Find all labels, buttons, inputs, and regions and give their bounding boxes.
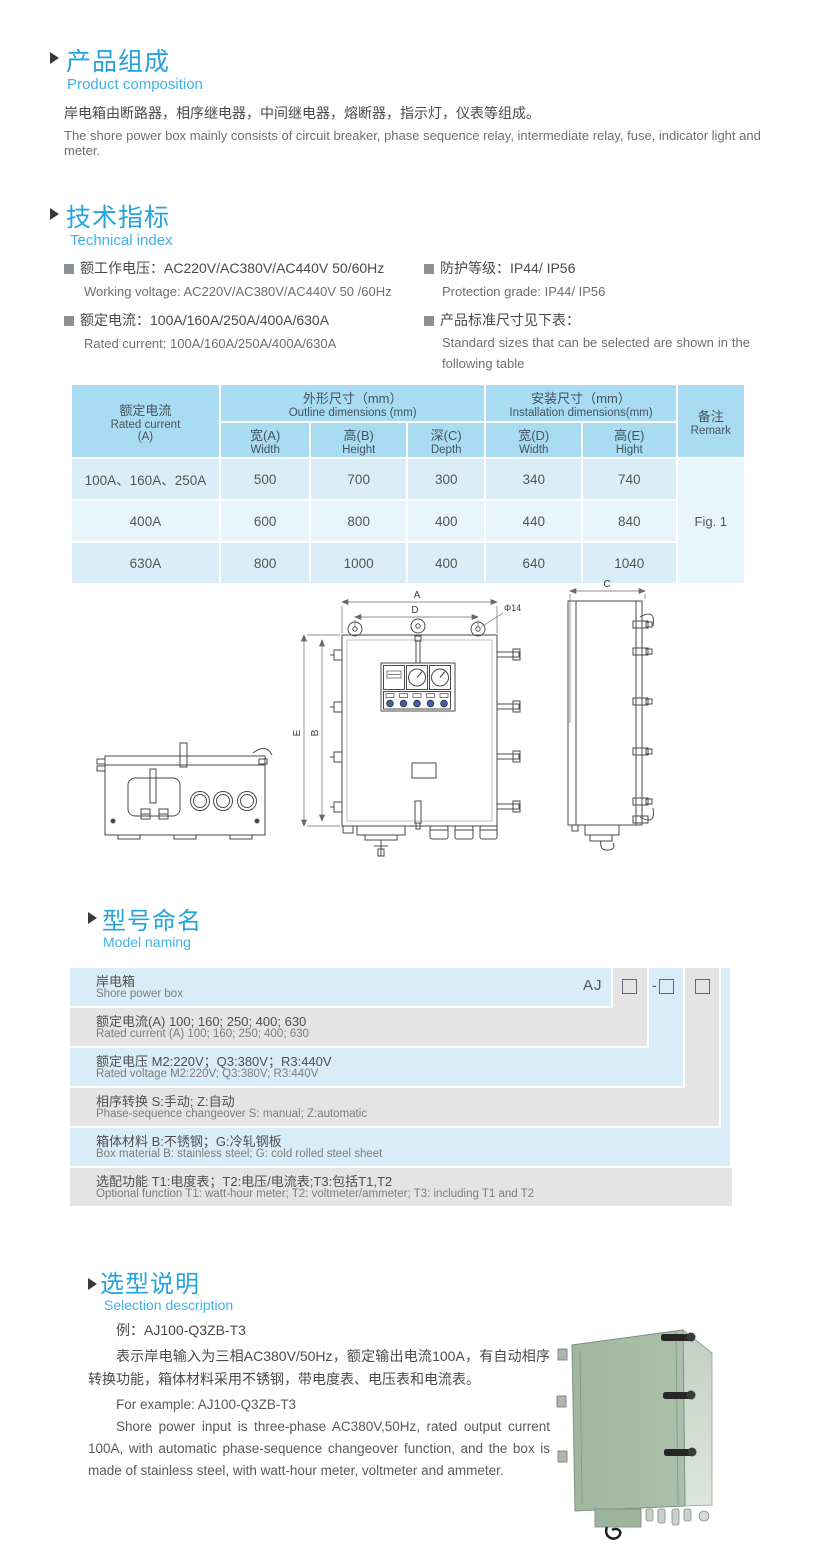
square-bullet-icon (424, 264, 434, 274)
dim-label-d: D (411, 605, 418, 616)
cell-current: 100A、160A、250A (72, 459, 219, 499)
table-row: 400A 600 800 400 440 840 (72, 501, 744, 541)
header-height-b: 高(B)Height (311, 423, 406, 457)
selection-text-block: 例：AJ100-Q3ZB-T3 表示岸电输入为三相AC380V/50Hz，额定输… (88, 1320, 550, 1482)
spec-rated-current-en: Rated current: 100A/160A/250A/400A/630A (84, 336, 336, 351)
section-title-selection: 选型说明 (100, 1264, 200, 1299)
cabinet-body (572, 1330, 712, 1511)
dimension-lines-side (570, 589, 645, 724)
front-view-drawing: A D Φ14 E B (292, 590, 521, 856)
remark-value: Fig. 1 (678, 459, 744, 583)
square-bullet-icon (64, 264, 74, 274)
square-bullet-icon (64, 316, 74, 326)
square-bullet-icon (424, 316, 434, 326)
spec-working-voltage-zh: 额工作电压：AC220V/AC380V/AC440V 50/60Hz (64, 258, 384, 278)
selection-example-zh: 例：AJ100-Q3ZB-T3 (88, 1320, 550, 1340)
section-title-model-naming: 型号命名 (102, 901, 202, 936)
cabinet-hinges (557, 1349, 567, 1462)
composition-text-zh: 岸电箱由断路器，相序继电器，中间继电器，熔断器，指示灯，仪表等组成。 (64, 103, 784, 123)
spec-standard-size-zh: 产品标准尺寸见下表： (424, 310, 580, 330)
model-naming-diagram: 岸电箱Shore power box 额定电流(A) 100; 160; 250… (0, 968, 830, 1213)
dim-label-e: E (292, 729, 303, 736)
model-row-optional-function: 选配功能 T1:电度表；T2:电压/电流表;T3:包括T1,T2Optional… (70, 1168, 732, 1206)
header-rated-current: 额定电流 Rated current (A) (72, 385, 219, 457)
spec-protection-en: Protection grade: IP44/ IP56 (442, 284, 605, 299)
product-photo (545, 1293, 800, 1568)
technical-drawing: A D Φ14 E B (60, 573, 800, 888)
section-arrow-icon (50, 208, 59, 220)
section-subtitle-model-naming: Model naming (103, 934, 191, 950)
model-row-rated-voltage: 额定电压 M2:220V；Q3:380V；R3:440VRated voltag… (70, 1048, 683, 1086)
model-prefix: AJ (583, 977, 603, 994)
bottom-view-drawing (97, 743, 272, 839)
section-arrow-icon (88, 1278, 97, 1290)
header-width-a: 宽(A)Width (221, 423, 310, 457)
dim-label-c: C (603, 579, 610, 590)
model-row-phase-changeover: 相序转换 S:手动; Z:自动Phase-sequence changeover… (70, 1088, 719, 1126)
cabinet-bottom-fittings (595, 1509, 709, 1539)
composition-text-en: The shore power box mainly consists of c… (64, 128, 794, 158)
code-box-voltage (659, 979, 674, 994)
indicator-lights (386, 694, 448, 707)
hinge-marks (330, 650, 342, 812)
model-row-box-material: 箱体材料 B:不锈钢；G:冷轧钢板Box material B: stainle… (70, 1128, 730, 1166)
cable-glands (191, 792, 257, 811)
table-row: 100A、160A、250A 500 700 300 340 740 Fig. … (72, 459, 744, 499)
section-title-composition: 产品组成 (66, 42, 170, 78)
section-subtitle-selection: Selection description (104, 1297, 233, 1313)
model-row-rated-current: 额定电流(A) 100; 160; 250; 400; 630Rated cur… (70, 1008, 647, 1046)
model-row-shore-power-box: 岸电箱Shore power box (70, 968, 611, 1006)
section-subtitle-composition: Product composition (67, 76, 203, 93)
spec-standard-size-en: Standard sizes that can be selected are … (442, 332, 750, 374)
header-outline-dims: 外形尺寸（mm） Outline dimensions (mm) (221, 385, 485, 421)
spec-protection-zh: 防护等级：IP44/ IP56 (424, 258, 575, 278)
code-box-current (622, 979, 637, 994)
selection-example-en: For example: AJ100-Q3ZB-T3 (88, 1397, 550, 1412)
header-width-d: 宽(D)Width (486, 423, 581, 457)
spec-rated-current-zh: 额定电流：100A/160A/250A/400A/630A (64, 310, 329, 330)
spec-working-voltage-en: Working voltage: AC220V/AC380V/AC440V 50… (84, 284, 392, 299)
latch-marks (497, 649, 520, 812)
section-subtitle-technical: Technical index (70, 232, 173, 249)
cell-current: 400A (72, 501, 219, 541)
side-view-drawing: C (568, 579, 653, 850)
header-remark: 备注 Remark (678, 385, 744, 457)
hole-label: Φ14 (504, 603, 521, 613)
header-hight-e: 高(E)Hight (583, 423, 676, 457)
dim-label-b: B (310, 729, 321, 736)
header-depth-c: 深(C)Depth (408, 423, 484, 457)
code-box-suffix (695, 979, 710, 994)
catalog-page: 产品组成 Product composition 岸电箱由断路器，相序继电器，中… (0, 0, 830, 1568)
section-arrow-icon (88, 912, 97, 924)
section-arrow-icon (50, 52, 59, 64)
header-install-dims: 安装尺寸（mm） Installation dimensions(mm) (486, 385, 675, 421)
section-title-technical: 技术指标 (66, 198, 170, 234)
selection-body-en: Shore power input is three-phase AC380V,… (88, 1416, 550, 1482)
dimensions-table: 额定电流 Rated current (A) 外形尺寸（mm） Outline … (70, 383, 746, 585)
dim-label-a: A (414, 590, 421, 601)
code-dash: - (652, 977, 657, 993)
selection-body-zh: 表示岸电输入为三相AC380V/50Hz，额定输出电流100A，有自动相序转换功… (88, 1345, 550, 1391)
